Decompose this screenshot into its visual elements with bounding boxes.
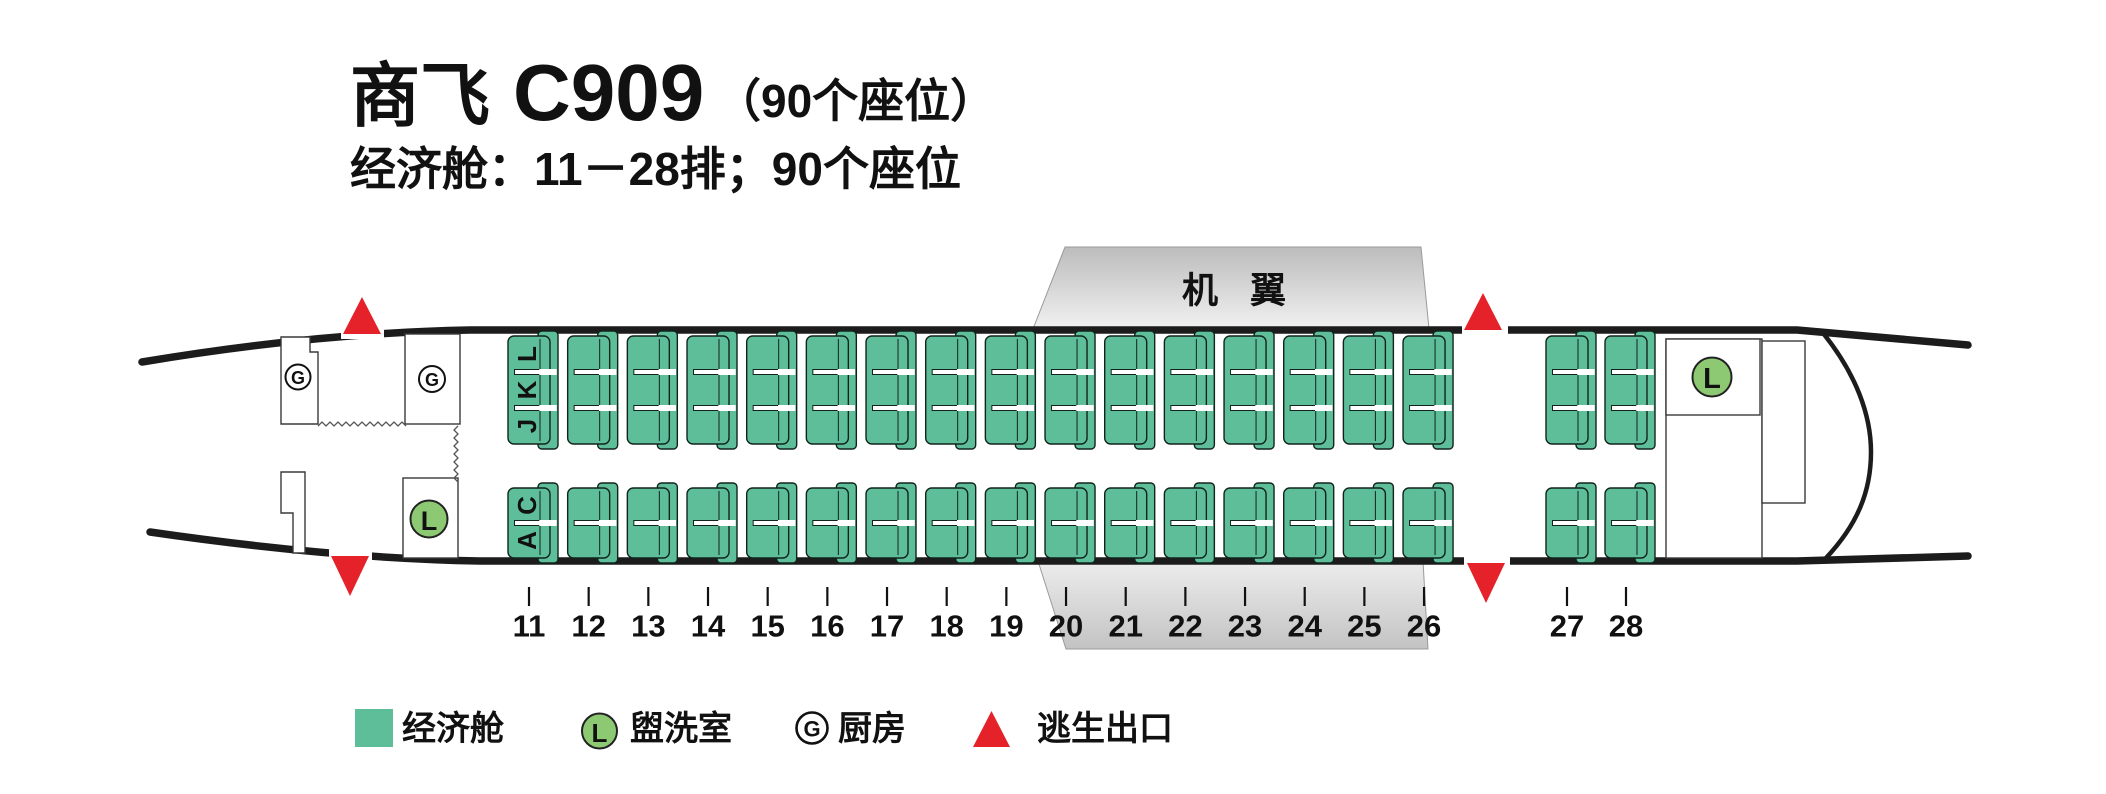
- row-number-21: 21: [1108, 609, 1142, 644]
- row-number-28: 28: [1609, 609, 1643, 644]
- exit-icon: [973, 711, 1010, 747]
- seat-column-row-20: [1045, 331, 1095, 563]
- legend-item-lavatory: L 盥洗室: [582, 709, 732, 749]
- curtain-zigzag-horizontal: [318, 422, 406, 426]
- legend-item-galley: G 厨房: [797, 710, 907, 748]
- curtain-zigzag-vertical: [454, 426, 458, 482]
- legend-label-economy: 经济舱: [402, 709, 504, 748]
- seatmap-page: 机 翼 LKJCA 111213141516171819202122232425…: [0, 0, 2106, 794]
- lavatory-symbol: L: [1703, 363, 1721, 395]
- row-number-24: 24: [1287, 609, 1322, 644]
- row-number-11: 11: [513, 609, 546, 644]
- seat-column-row-21: [1105, 331, 1155, 563]
- seat-letter-C: C: [512, 496, 542, 515]
- seat-column-row-14: [687, 331, 737, 563]
- row-number-12: 12: [571, 609, 605, 644]
- legend-item-exit: 逃生出口: [973, 710, 1173, 748]
- rear-bulkhead-curve: [1823, 333, 1871, 558]
- exit-triangle-rear-bottom: [1467, 563, 1505, 603]
- title-seats-note: （90个座位）: [715, 75, 996, 127]
- seat-column-row-25: [1343, 331, 1393, 563]
- row-number-27: 27: [1550, 609, 1584, 644]
- front-door-outline: [281, 472, 305, 553]
- lavatory-icon-front: L: [411, 501, 448, 538]
- seat-column-row-28: [1605, 331, 1655, 563]
- economy-seat-swatch: [355, 709, 393, 747]
- row-number-26: 26: [1407, 609, 1441, 644]
- seats-layer: LKJCA: [508, 331, 1655, 563]
- galley-symbol: G: [425, 370, 439, 390]
- exit-triangle-front-top: [343, 297, 381, 334]
- row-number-16: 16: [810, 609, 844, 644]
- page-subtitle: 经济舱：11－28排；90个座位: [350, 143, 961, 195]
- page-title: 商飞 C909 （90个座位）: [350, 48, 996, 137]
- galley-icon-front-2: G: [419, 366, 445, 392]
- row-number-25: 25: [1347, 609, 1381, 644]
- seat-column-row-17: [866, 331, 916, 563]
- seat-column-row-24: [1284, 331, 1334, 563]
- seat-letter-L: L: [512, 346, 542, 362]
- legend-item-economy: 经济舱: [355, 709, 504, 748]
- galley-symbol: G: [803, 717, 820, 742]
- legend: 经济舱 L 盥洗室 G 厨房 逃生出口: [355, 709, 1173, 749]
- seat-letter-A: A: [512, 531, 542, 550]
- galley-icon-front-1: G: [286, 365, 311, 390]
- seat-column-row-15: [747, 331, 797, 563]
- row-number-14: 14: [691, 609, 726, 644]
- seat-column-row-16: [806, 331, 856, 563]
- row-number-20: 20: [1049, 609, 1083, 644]
- seat-column-row-12: [568, 331, 618, 563]
- seatmap-canvas: 机 翼 LKJCA 111213141516171819202122232425…: [0, 0, 2106, 794]
- seat-column-row-11: LKJCA: [508, 331, 558, 563]
- title-model: C909: [513, 48, 704, 137]
- row-number-22: 22: [1168, 609, 1202, 644]
- seat-column-row-18: [926, 331, 976, 563]
- lavatory-symbol: L: [592, 718, 608, 748]
- legend-label-galley: 厨房: [838, 710, 906, 748]
- title-brand: 商飞: [350, 57, 490, 135]
- galley-symbol: G: [291, 368, 305, 388]
- seat-column-row-19: [985, 331, 1035, 563]
- lavatory-icon-rear: L: [1693, 358, 1732, 397]
- exit-triangle-front-bottom: [331, 556, 369, 596]
- wing-label: 机 翼: [1182, 270, 1297, 311]
- lavatory-symbol: L: [421, 506, 438, 536]
- legend-label-lavatory: 盥洗室: [630, 709, 732, 748]
- seat-column-row-27: [1546, 331, 1596, 563]
- seat-column-row-26: [1403, 331, 1453, 563]
- row-number-13: 13: [631, 609, 665, 644]
- rear-closet-box: [1762, 341, 1805, 503]
- seat-column-row-23: [1224, 331, 1274, 563]
- seat-letter-J: J: [512, 419, 542, 433]
- row-number-15: 15: [750, 609, 784, 644]
- legend-label-exit: 逃生出口: [1037, 710, 1173, 748]
- seat-letter-K: K: [512, 380, 542, 399]
- row-number-19: 19: [989, 609, 1023, 644]
- row-number-23: 23: [1228, 609, 1262, 644]
- exit-triangle-rear-top: [1464, 293, 1502, 330]
- seat-column-row-22: [1164, 331, 1214, 563]
- row-number-18: 18: [929, 609, 963, 644]
- row-number-17: 17: [870, 609, 904, 644]
- seat-column-row-13: [627, 331, 677, 563]
